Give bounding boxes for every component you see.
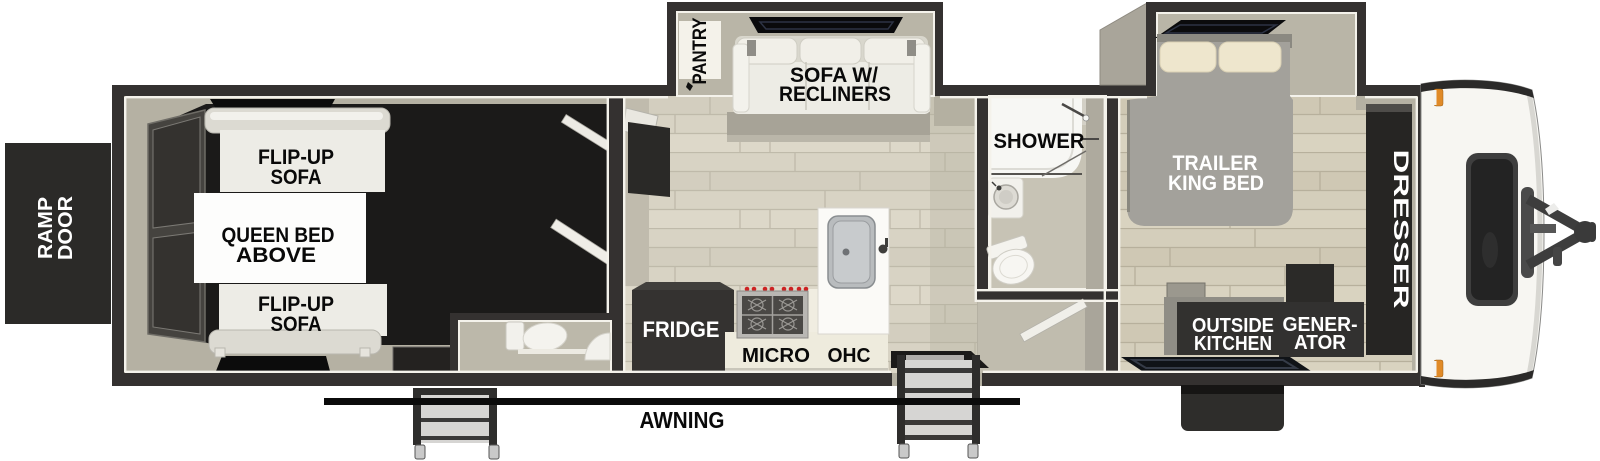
svg-text:MICRO: MICRO bbox=[742, 345, 810, 367]
svg-text:DRESSER: DRESSER bbox=[1389, 150, 1412, 309]
svg-text:FRIDGE: FRIDGE bbox=[643, 317, 720, 342]
svg-text:SOFA: SOFA bbox=[271, 313, 322, 336]
svg-text:RAMP: RAMP bbox=[35, 197, 57, 259]
svg-text:ATOR: ATOR bbox=[1294, 332, 1347, 354]
svg-text:SHOWER: SHOWER bbox=[994, 130, 1085, 153]
svg-text:DOOR: DOOR bbox=[55, 195, 77, 260]
svg-text:AWNING: AWNING bbox=[640, 407, 725, 433]
svg-text:ABOVE: ABOVE bbox=[236, 244, 316, 267]
svg-text:PANTRY: PANTRY bbox=[690, 17, 711, 84]
svg-text:KITCHEN: KITCHEN bbox=[1194, 333, 1272, 355]
svg-text:RECLINERS: RECLINERS bbox=[779, 83, 891, 106]
svg-text:KING BED: KING BED bbox=[1168, 172, 1264, 195]
svg-text:SOFA: SOFA bbox=[271, 166, 322, 189]
svg-text:OHC: OHC bbox=[828, 345, 871, 367]
